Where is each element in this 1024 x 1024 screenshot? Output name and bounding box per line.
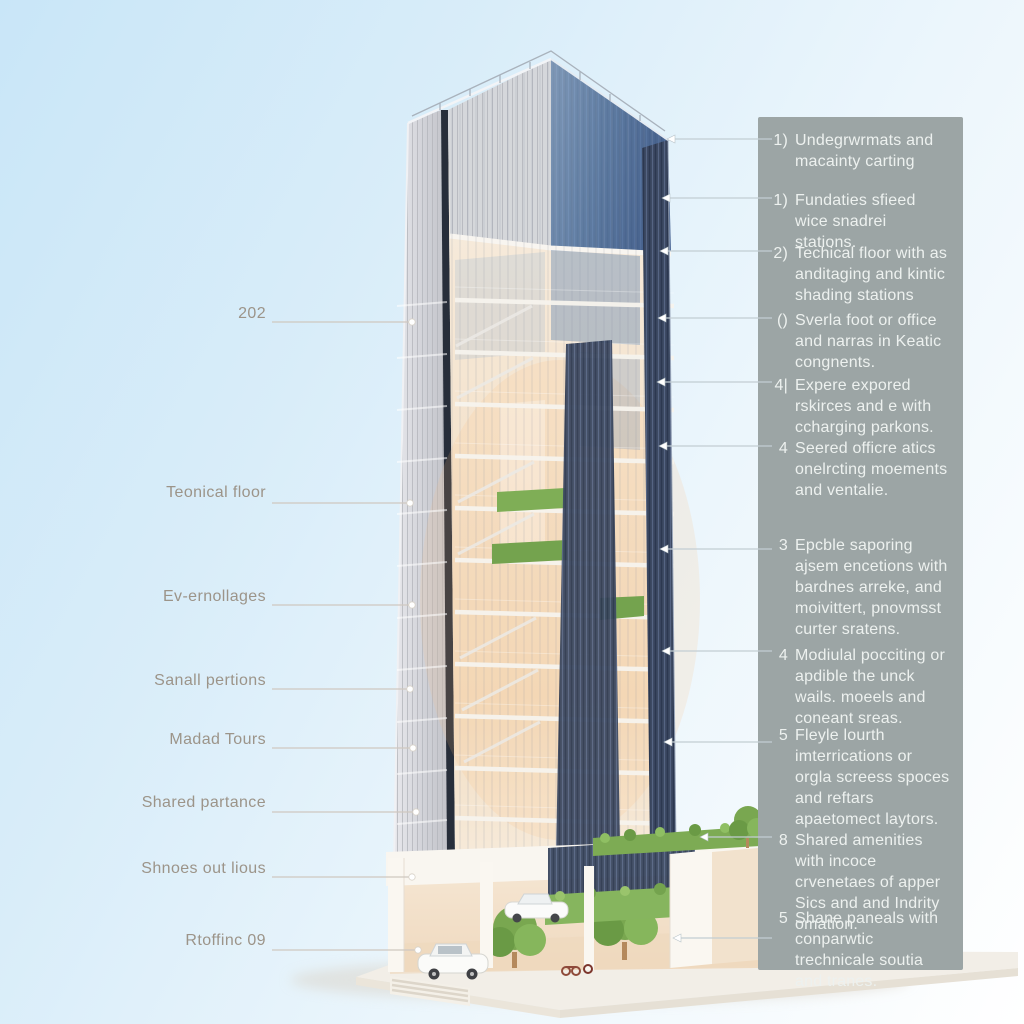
center-fin-cluster bbox=[556, 340, 620, 854]
annotation-panel: 1)Undegrwrmats and macainty carting1)Fun… bbox=[758, 117, 963, 970]
annotation-text: Modiulal pocciting or apdible the unck w… bbox=[795, 645, 963, 729]
annotation-number: 1) bbox=[758, 130, 795, 172]
annotation-item: 4Modiulal pocciting or apdible the unck … bbox=[758, 645, 963, 729]
annotation-item: 5Fleyle lourth imterrications or orgla s… bbox=[758, 725, 963, 830]
annotation-number: 5 bbox=[758, 908, 795, 992]
annotation-number: 2) bbox=[758, 243, 795, 306]
annotation-number: () bbox=[758, 310, 795, 373]
annotation-number: 4| bbox=[758, 375, 795, 438]
annotation-text: Shane paneals with conparwtic trechnical… bbox=[795, 908, 963, 992]
annotation-number: 5 bbox=[758, 725, 795, 830]
annotation-item: 1)Undegrwrmats and macainty carting bbox=[758, 130, 963, 172]
annotation-number: 4 bbox=[758, 438, 795, 501]
annotation-number: 3 bbox=[758, 535, 795, 640]
annotation-item: 3Epcble saporing ajsem encetions with ba… bbox=[758, 535, 963, 640]
annotation-text: Sverla foot or office and narras in Keat… bbox=[795, 310, 963, 373]
annotation-item: 4Seered officre atics onelrcting moement… bbox=[758, 438, 963, 501]
annotation-item: ()Sverla foot or office and narras in Ke… bbox=[758, 310, 963, 373]
annotation-item: 5Shane paneals with conparwtic trechnica… bbox=[758, 908, 963, 992]
annotation-text: Epcble saporing ajsem encetions with bar… bbox=[795, 535, 963, 640]
annotation-text: Fleyle lourth imterrications or orgla sc… bbox=[795, 725, 963, 830]
annotation-text: Expere expored rskirces and e with cchar… bbox=[795, 375, 963, 438]
annotation-text: Techical floor with as anditaging and ki… bbox=[795, 243, 963, 306]
annotation-number: 4 bbox=[758, 645, 795, 729]
annotation-text: Seered officre atics onelrcting moements… bbox=[795, 438, 963, 501]
annotation-text: Undegrwrmats and macainty carting bbox=[795, 130, 963, 172]
architectural-diagram: 202Teonical floorEv-ernollagesSanall per… bbox=[0, 0, 1024, 1024]
annotation-item: 4|Expere expored rskirces and e with cch… bbox=[758, 375, 963, 438]
annotation-item: 2)Techical floor with as anditaging and … bbox=[758, 243, 963, 306]
tower bbox=[394, 51, 700, 862]
